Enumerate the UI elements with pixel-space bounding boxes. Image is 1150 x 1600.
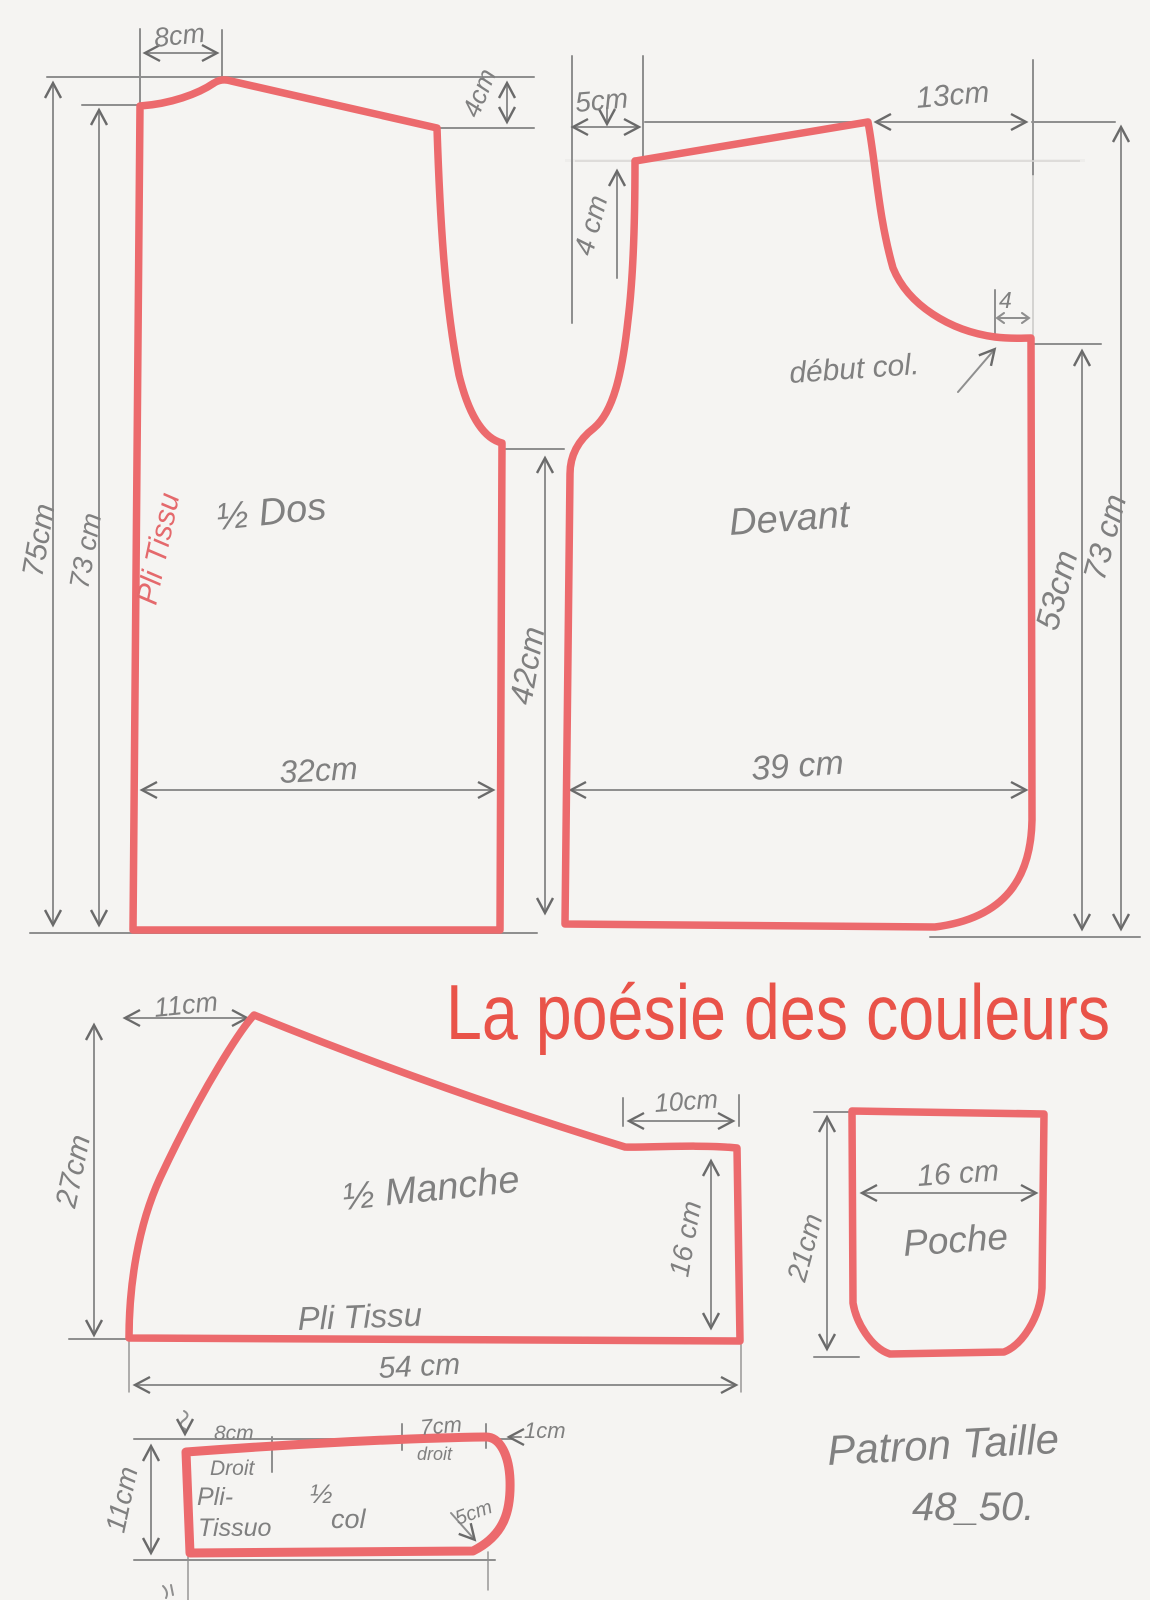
svg-text:col: col (331, 1504, 367, 1534)
svg-text:4: 4 (999, 287, 1012, 313)
svg-text:7cm: 7cm (419, 1411, 463, 1440)
svg-text:32cm: 32cm (278, 750, 358, 790)
svg-text:8cm: 8cm (214, 1422, 254, 1445)
svg-text:48_50.: 48_50. (912, 1485, 1034, 1529)
svg-text:Pli-: Pli- (197, 1483, 233, 1511)
svg-text:La poésie des couleurs: La poésie des couleurs (446, 968, 1110, 1056)
svg-text:16 cm: 16 cm (916, 1154, 1000, 1193)
svg-text:5cm: 5cm (574, 82, 629, 117)
svg-text:½: ½ (310, 1479, 333, 1509)
svg-text:Tissuo: Tissuo (198, 1514, 272, 1542)
svg-text:8cm: 8cm (152, 18, 206, 53)
svg-text:13cm: 13cm (915, 76, 991, 115)
svg-text:Devant: Devant (728, 494, 852, 544)
svg-text:Droit: Droit (210, 1457, 256, 1480)
svg-text:Poche: Poche (902, 1216, 1010, 1264)
svg-text:Pli Tissu: Pli Tissu (297, 1296, 423, 1337)
svg-text:10cm: 10cm (653, 1084, 719, 1118)
svg-text:39 cm: 39 cm (750, 744, 845, 788)
svg-text:54 cm: 54 cm (378, 1348, 461, 1385)
svg-text:1cm: 1cm (524, 1418, 566, 1443)
svg-text:droit: droit (417, 1444, 453, 1464)
